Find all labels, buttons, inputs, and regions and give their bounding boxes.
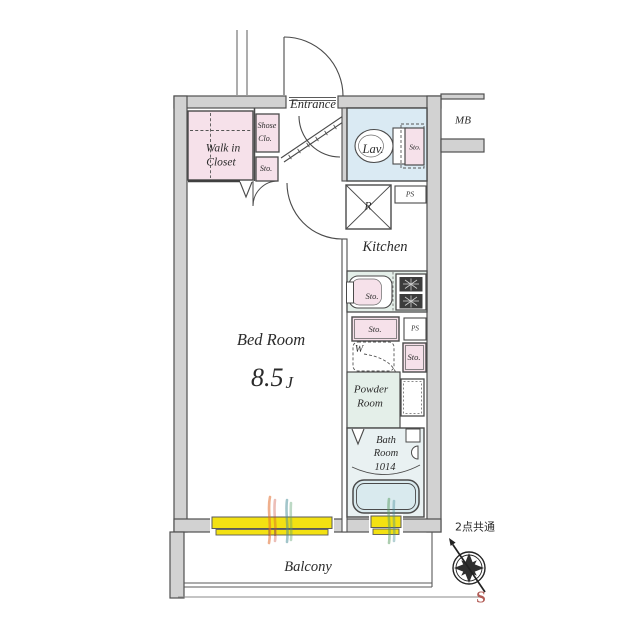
- lav-storage-label: Sto.: [409, 143, 420, 151]
- walk-in-closet-label-line2: Closet: [206, 157, 235, 169]
- walk-in-closet-label-line1: Walk in: [206, 143, 240, 155]
- compass: [449, 538, 485, 592]
- wall-right: [427, 96, 441, 532]
- powder-room-label-line1: Powder: [354, 385, 388, 396]
- kitchen-label: Kitchen: [362, 240, 407, 255]
- entrance-storage-label: Sto.: [260, 165, 272, 173]
- mid-storage-label: Sto.: [369, 325, 382, 334]
- closet-door-arc: [253, 181, 278, 206]
- sink-storage-label: Sto.: [366, 292, 379, 301]
- floor-plan: Entrance MB Walk in Closet Shose Clo. St…: [0, 0, 640, 640]
- bath-room-label-line1: Bath: [376, 436, 396, 447]
- entrance-diagonal-wall: [281, 116, 346, 162]
- wall-mb-stub: [441, 139, 484, 152]
- powder-cabinet: [401, 379, 424, 416]
- bedroom-label: Bed Room: [237, 332, 305, 349]
- bath-room-label-line2: Room: [374, 449, 399, 460]
- bedroom-door-arc: [287, 183, 342, 239]
- right-storage-label: Sto.: [408, 353, 421, 362]
- ps-mid-label: PS: [411, 326, 419, 333]
- powder-room-label-line2: Room: [357, 399, 383, 410]
- entrance-door-arc: [284, 37, 343, 96]
- shoe-closet-box: [256, 114, 279, 152]
- shoe-closet-label-line2: Clo.: [258, 135, 272, 143]
- bedroom-size-unit: J: [285, 374, 293, 391]
- shoe-closet-label-line1: Shose: [258, 122, 277, 130]
- upper-wall-lines: [237, 30, 247, 95]
- compass-south-label: S: [476, 589, 485, 606]
- bedroom-window: [210, 515, 334, 536]
- balcony-label: Balcony: [284, 560, 332, 575]
- meter-box-label: MB: [455, 116, 471, 127]
- ps-top-label: PS: [406, 190, 414, 198]
- lavatory-label: Lav.: [363, 143, 384, 156]
- entrance-label: Entrance: [290, 98, 336, 111]
- wall-mb-top: [441, 94, 484, 99]
- bedroom-size-value: 8.5: [251, 365, 284, 391]
- bath-counter-box: [406, 429, 420, 442]
- refrigerator-label: R: [364, 201, 371, 213]
- bath-room-label-line3: 1014: [375, 463, 396, 474]
- compass-needle-arrowhead: [449, 538, 456, 546]
- washer-label: W: [355, 345, 363, 355]
- wall-top-right: [338, 96, 441, 108]
- stove: [396, 274, 426, 310]
- wall-balcony-left: [170, 532, 184, 598]
- bathtub: [353, 480, 419, 513]
- wall-top-left: [174, 96, 286, 108]
- entrance-lav-wall: [342, 108, 347, 181]
- bedroom-size-label: 8.5 J: [251, 365, 293, 391]
- closet-door-fold-mark: [240, 182, 252, 197]
- bath-window: [369, 514, 403, 536]
- wall-left: [174, 96, 187, 532]
- compass-note-label: 2点共通: [455, 522, 495, 533]
